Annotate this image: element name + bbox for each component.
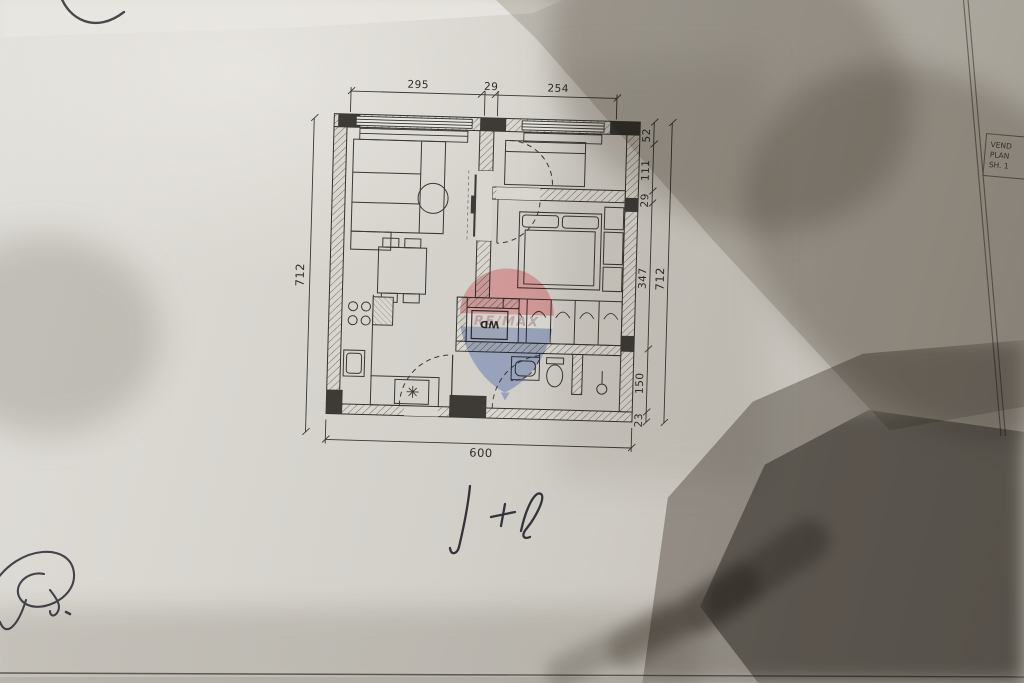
dim-top-29: 29 <box>484 81 499 93</box>
dim-right-23: 23 <box>633 413 645 428</box>
dim-right-52: 52 <box>641 128 653 143</box>
dim-right-712: 712 <box>653 267 668 291</box>
bedroom-door <box>497 199 540 244</box>
handwritten-unit-type <box>450 486 542 553</box>
dim-right-150: 150 <box>634 372 647 394</box>
kitchen <box>342 294 441 407</box>
dim-top-295: 295 <box>407 79 429 92</box>
floor-plan-drawing: WD <box>285 70 696 476</box>
remax-brand-text: RE/MAX <box>474 314 540 331</box>
photo-of-floor-plan-paper: VEND PLAN SH. 1 <box>0 0 1024 683</box>
dim-right-29: 29 <box>639 193 651 208</box>
title-block: VEND PLAN SH. 1 <box>983 134 1024 182</box>
remax-watermark: RE/MAX <box>457 267 555 402</box>
pen-stroke-top-left <box>60 0 124 23</box>
signature-scribble <box>0 552 74 629</box>
fridge-symbol <box>406 386 418 398</box>
dim-left-712: 712 <box>293 263 308 287</box>
sliding-door <box>467 170 477 240</box>
dim-top-254: 254 <box>547 83 569 96</box>
sheet-bottom-border-line <box>0 673 1024 677</box>
hall-closet <box>504 140 585 186</box>
title-block-line3: SH. 1 <box>989 160 1010 171</box>
dim-bottom-600: 600 <box>469 445 493 460</box>
adjacent-sheet-border <box>963 0 1006 436</box>
living-room-furniture <box>349 139 449 304</box>
toilet <box>546 365 563 387</box>
floor-plan-wrap: WD <box>285 70 696 476</box>
dim-right-347: 347 <box>637 267 650 289</box>
shower-drain <box>597 384 607 394</box>
title-block-line1: VEND <box>990 140 1012 151</box>
title-block-line2: PLAN <box>989 150 1009 161</box>
paper-below-border <box>0 677 1024 683</box>
dim-right-111: 111 <box>640 159 653 181</box>
dining-table <box>377 247 426 294</box>
